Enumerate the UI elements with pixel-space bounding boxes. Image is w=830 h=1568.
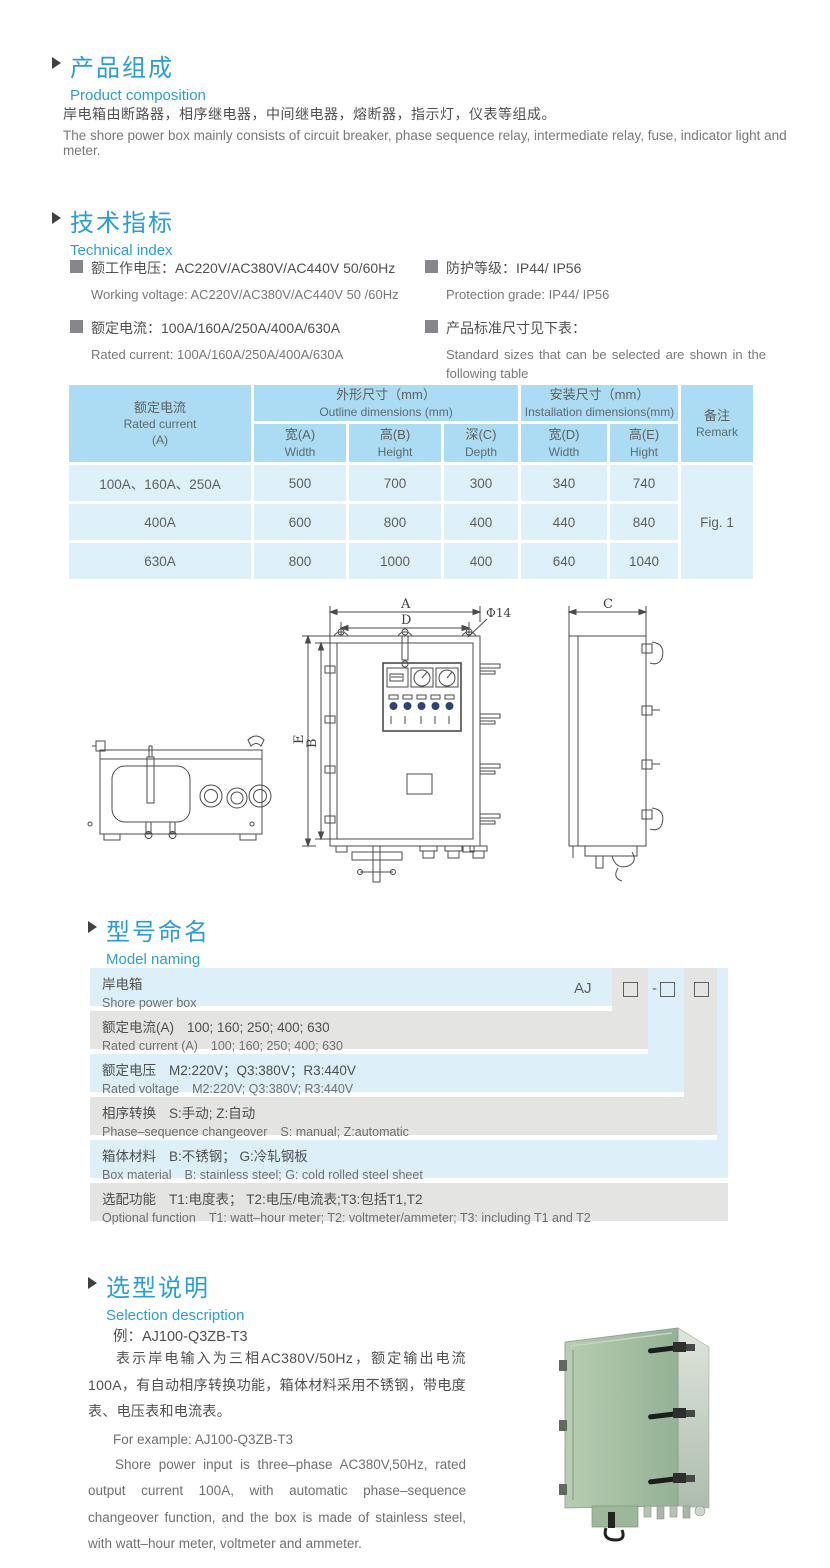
selection-body-cn: 表示岸电输入为三相AC380V/50Hz，额定输出电流100A，有自动相序转换功…: [88, 1345, 466, 1425]
spec-cn: 防护等级：IP44/ IP56: [446, 258, 581, 278]
technical-drawing: A D Φ14 E B C: [0, 578, 830, 893]
col-header-width-a: 宽(A)Width: [254, 424, 346, 462]
model-row-optional-function: 选配功能T1:电度表； T2:电压/电流表;T3:包括T1,T2 Optiona…: [90, 1183, 728, 1221]
cell-depth: 400: [444, 543, 518, 579]
col-header-height-b: 高(B)Height: [349, 424, 441, 462]
section-title-cn: 技术指标: [70, 203, 174, 238]
cell-current: 100A、160A、250A: [69, 465, 251, 501]
cell-install-width: 340: [521, 465, 607, 501]
col-header-remark: 备注 Remark: [681, 385, 753, 462]
catalog-page: 产品组成 Product composition 岸电箱由断路器，相序继电器，中…: [0, 0, 830, 1568]
spec-cn: 额定电流：100A/160A/250A/400A/630A: [91, 318, 340, 338]
model-code-box: [623, 982, 638, 997]
composition-text-en: The shore power box mainly consists of c…: [63, 128, 803, 158]
cell-width: 800: [254, 543, 346, 579]
spec-cn: 额工作电压：AC220V/AC380V/AC440V 50/60Hz: [91, 258, 395, 278]
section-title-cn: 型号命名: [106, 912, 210, 947]
cell-install-width: 440: [521, 504, 607, 540]
size-table: 额定电流 Rated current (A) 外形尺寸（mm） Outline …: [66, 382, 756, 582]
bottom-view: [88, 736, 271, 840]
example-model-en: For example: AJ100-Q3ZB-T3: [113, 1432, 293, 1447]
cell-remark: Fig. 1: [681, 465, 753, 579]
cell-current: 400A: [69, 504, 251, 540]
section-technical-index-header: 技术指标 Technical index: [52, 203, 174, 259]
cell-height: 700: [349, 465, 441, 501]
model-row-rated-current: 额定电流(A)100; 160; 250; 400; 630 Rated cur…: [90, 1011, 648, 1049]
cell-width: 600: [254, 504, 346, 540]
spec-en: Working voltage: AC220V/AC380V/AC440V 50…: [91, 285, 415, 305]
hole-diameter-label: Φ14: [486, 606, 511, 620]
cell-height: 800: [349, 504, 441, 540]
cable-glands: [644, 1506, 705, 1519]
dim-label-c: C: [603, 597, 613, 612]
composition-text-cn: 岸电箱由断路器，相序继电器，中间继电器，熔断器，指示灯，仪表等组成。: [63, 104, 783, 124]
square-bullet-icon: [70, 320, 83, 333]
model-code-box: [660, 982, 675, 997]
col-header-rated-current: 额定电流 Rated current (A): [69, 385, 251, 462]
spec-standard-sizes: 产品标准尺寸见下表： Standard sizes that can be se…: [425, 318, 770, 384]
spec-en: Standard sizes that can be selected are …: [446, 345, 766, 384]
cell-depth: 300: [444, 465, 518, 501]
section-arrow-icon: [52, 57, 61, 69]
selection-body-en: Shore power input is three–phase AC380V,…: [88, 1452, 466, 1557]
section-title-cn: 选型说明: [106, 1268, 210, 1303]
model-row-rated-voltage: 额定电压M2:220V；Q3:380V；R3:440V Rated voltag…: [90, 1054, 684, 1092]
cell-current: 630A: [69, 543, 251, 579]
cell-install-width: 640: [521, 543, 607, 579]
front-view: [302, 606, 500, 882]
spec-rated-current: 额定电流：100A/160A/250A/400A/630A Rated curr…: [70, 318, 415, 365]
spec-working-voltage: 额工作电压：AC220V/AC380V/AC440V 50/60Hz Worki…: [70, 258, 415, 305]
cell-install-height: 840: [610, 504, 678, 540]
cell-depth: 400: [444, 504, 518, 540]
cell-install-height: 1040: [610, 543, 678, 579]
model-row-phase-changeover: 相序转换S:手动; Z:自动 Phase–sequence changeover…: [90, 1097, 717, 1135]
spec-protection-grade: 防护等级：IP44/ IP56 Protection grade: IP44/ …: [425, 258, 770, 305]
cell-height: 1000: [349, 543, 441, 579]
section-title-en: Selection description: [106, 1307, 244, 1324]
model-row-shore-power-box: 岸电箱 Shore power box: [90, 968, 612, 1006]
spec-en: Rated current: 100A/160A/250A/400A/630A: [91, 345, 415, 365]
spec-column-left: 额工作电压：AC220V/AC380V/AC440V 50/60Hz Worki…: [70, 258, 415, 377]
col-group-installation-dimensions: 安装尺寸（mm） Installation dimensions(mm): [521, 385, 678, 421]
meter-panel: [383, 663, 461, 731]
spec-en: Protection grade: IP44/ IP56: [446, 285, 770, 305]
model-code-box: [694, 982, 709, 997]
dim-label-a: A: [400, 597, 411, 612]
square-bullet-icon: [425, 260, 438, 273]
model-code-prefix: AJ: [574, 980, 592, 997]
cell-install-height: 740: [610, 465, 678, 501]
table-row: 400A 600 800 400 440 840: [69, 504, 753, 540]
model-code-dash: -: [652, 980, 657, 997]
section-arrow-icon: [52, 212, 61, 224]
dim-label-d: D: [401, 613, 411, 628]
spec-column-right: 防护等级：IP44/ IP56 Protection grade: IP44/ …: [425, 258, 770, 397]
col-group-outline-dimensions: 外形尺寸（mm） Outline dimensions (mm): [254, 385, 518, 421]
section-title-en: Product composition: [70, 87, 206, 104]
example-model-cn: 例：AJ100-Q3ZB-T3: [113, 1325, 248, 1346]
section-selection-description-header: 选型说明 Selection description: [88, 1268, 244, 1324]
square-bullet-icon: [425, 320, 438, 333]
section-arrow-icon: [88, 1277, 97, 1289]
col-header-height-e: 高(E)Hight: [610, 424, 678, 462]
section-product-composition-header: 产品组成 Product composition: [52, 48, 206, 104]
dim-label-b: B: [305, 738, 320, 748]
section-title-en: Technical index: [70, 242, 174, 259]
model-row-box-material: 箱体材料B:不锈钢； G:冷轧钢板 Box materialB: stainle…: [90, 1140, 728, 1178]
section-arrow-icon: [88, 921, 97, 933]
side-view: [569, 606, 663, 881]
square-bullet-icon: [70, 260, 83, 273]
table-row: 100A、160A、250A 500 700 300 340 740 Fig. …: [69, 465, 753, 501]
table-row: 630A 800 1000 400 640 1040: [69, 543, 753, 579]
product-photo: [540, 1300, 825, 1568]
col-header-depth-c: 深(C)Depth: [444, 424, 518, 462]
section-title-en: Model naming: [106, 951, 210, 968]
col-header-width-d: 宽(D)Width: [521, 424, 607, 462]
section-title-cn: 产品组成: [70, 48, 174, 83]
spec-cn: 产品标准尺寸见下表：: [446, 318, 586, 338]
cell-width: 500: [254, 465, 346, 501]
section-model-naming-header: 型号命名 Model naming: [88, 912, 210, 968]
